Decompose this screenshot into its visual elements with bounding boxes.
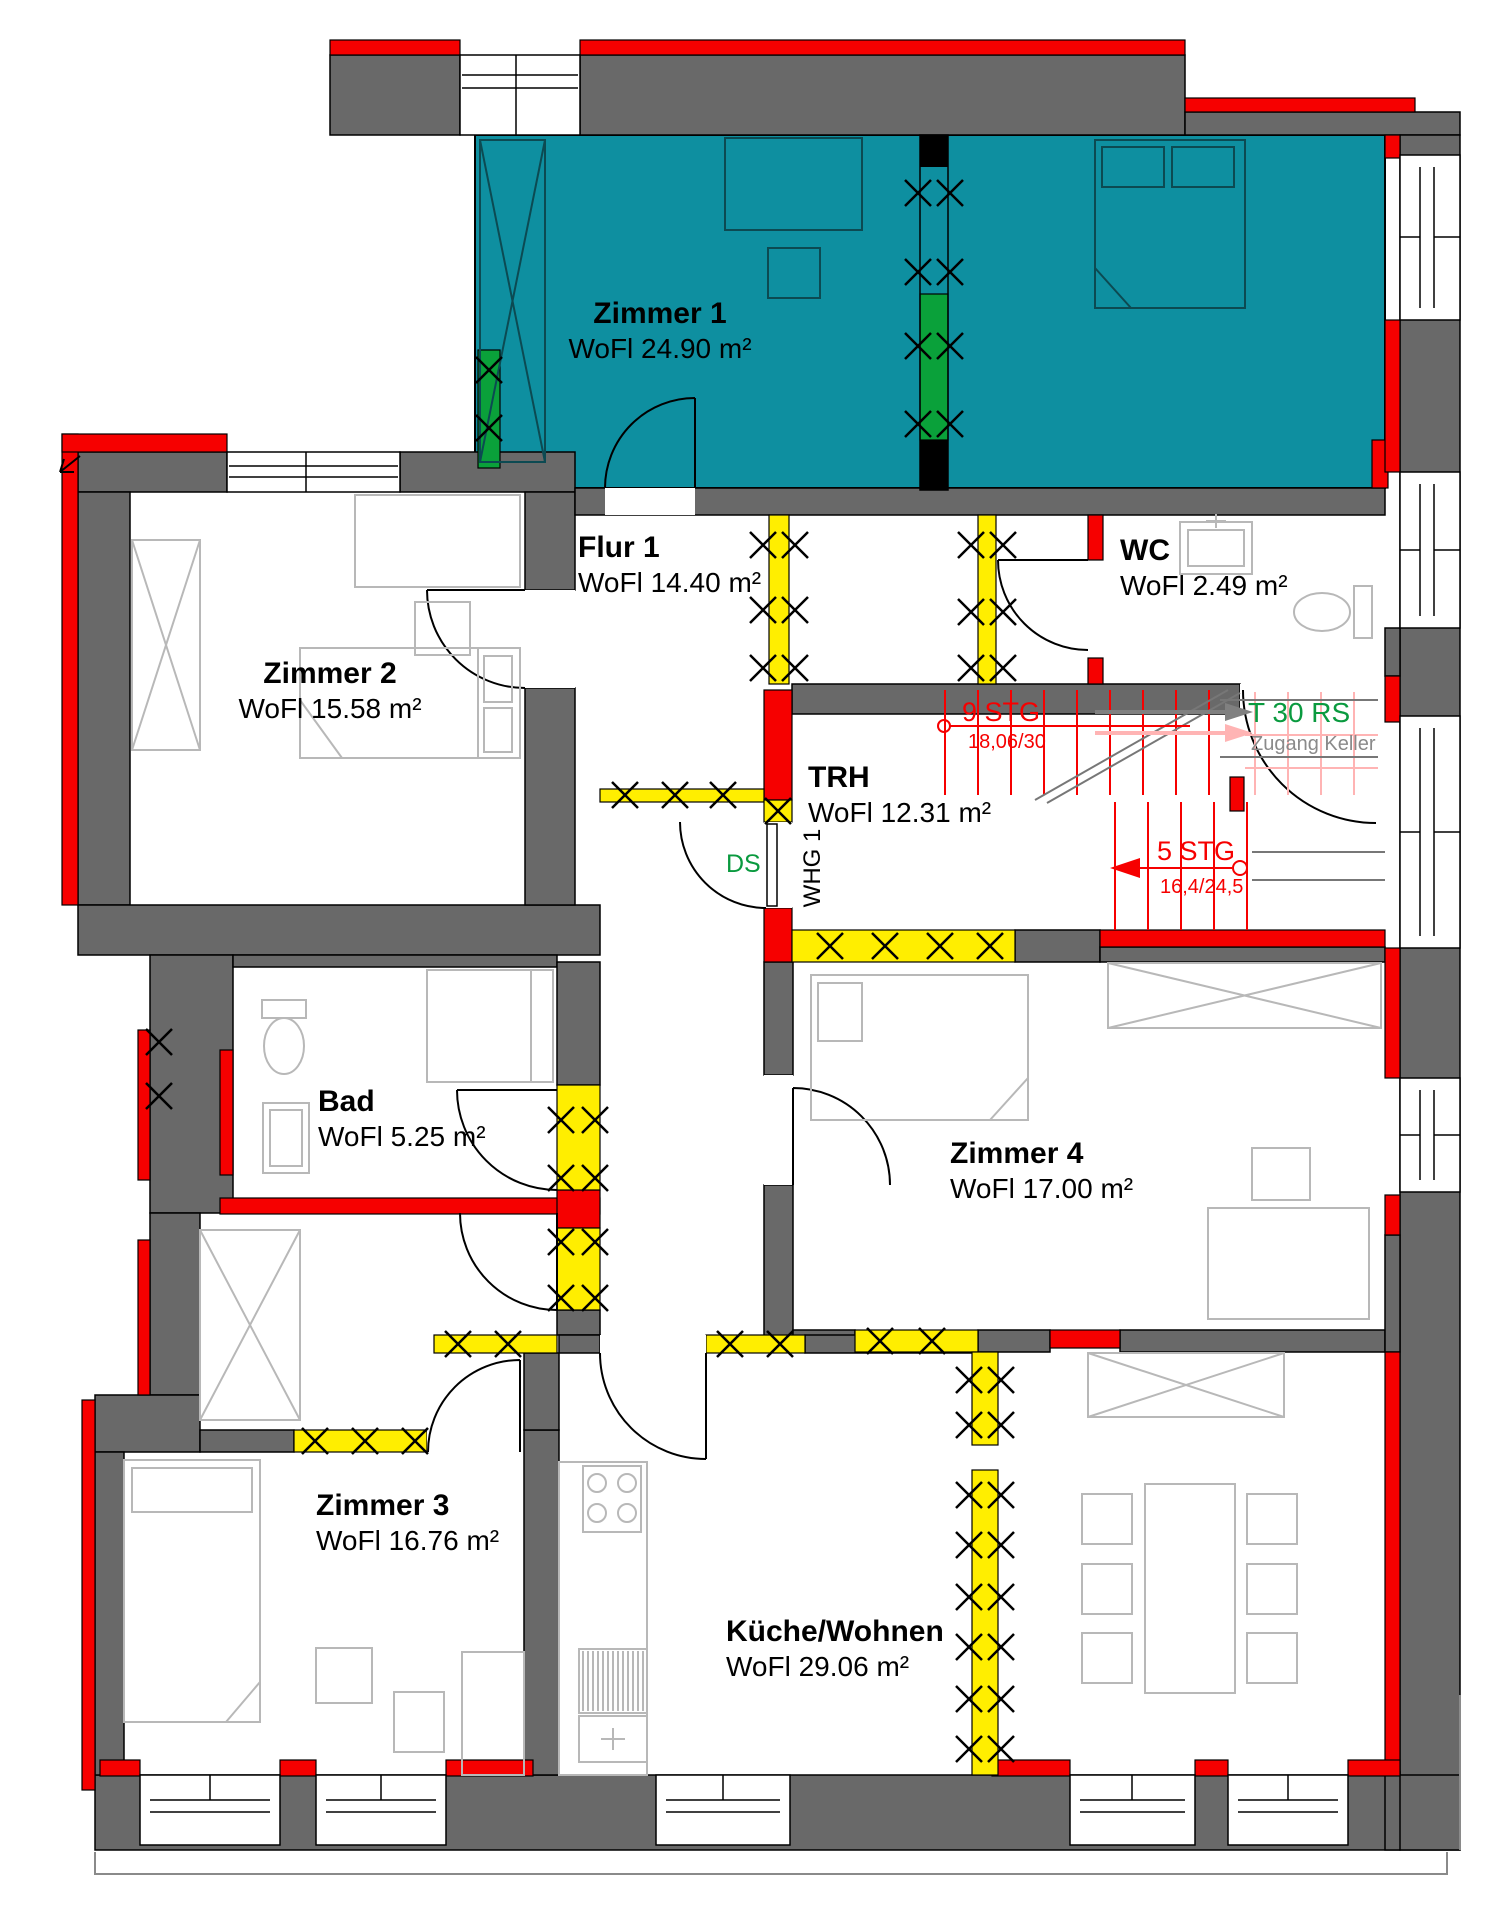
ds-mark: DS — [726, 850, 761, 879]
room-label-zimmer4: Zimmer 4 WoFl 17.00 m² — [950, 1136, 1133, 1206]
floor-plan: Zimmer 1 WoFl 24.90 m² Zimmer 2 WoFl 15.… — [0, 0, 1500, 1930]
appliance-hatch — [583, 1651, 643, 1711]
stair-down-dim: 16,4/24,5 — [1160, 876, 1243, 899]
whg1-mark: WHG 1 — [799, 829, 827, 908]
room-area: WoFl 16.76 m² — [316, 1524, 499, 1558]
room-label-zimmer3: Zimmer 3 WoFl 16.76 m² — [316, 1488, 499, 1558]
room-label-wc: WC WoFl 2.49 m² — [1120, 533, 1288, 603]
chair — [1252, 1148, 1310, 1200]
room-area: WoFl 5.25 m² — [318, 1120, 486, 1154]
toilet-tank — [262, 1000, 306, 1018]
room-area: WoFl 17.00 m² — [950, 1172, 1133, 1206]
room-label-zimmer2: Zimmer 2 WoFl 15.58 m² — [238, 656, 421, 726]
room-area: WoFl 2.49 m² — [1120, 569, 1288, 603]
bed — [124, 1460, 260, 1722]
desk — [355, 495, 520, 587]
room-label-trh: TRH WoFl 12.31 m² — [808, 760, 991, 830]
room-area: WoFl 29.06 m² — [726, 1650, 944, 1684]
kitchen-counter — [559, 1462, 647, 1775]
room-label-kueche: Küche/Wohnen WoFl 29.06 m² — [726, 1614, 944, 1684]
room-label-flur1: Flur 1 WoFl 14.40 m² — [578, 530, 761, 600]
side-table — [462, 1652, 524, 1775]
nightstand — [316, 1648, 372, 1703]
room-name: Bad — [318, 1084, 486, 1120]
bed — [811, 975, 1028, 1120]
room-area: WoFl 14.40 m² — [578, 566, 761, 600]
room-label-zimmer1: Zimmer 1 WoFl 24.90 m² — [568, 296, 751, 366]
cellar-access-label: Zugang Keller — [1251, 733, 1376, 756]
room-name: Zimmer 4 — [950, 1136, 1133, 1172]
chair — [394, 1692, 444, 1752]
room-name: WC — [1120, 533, 1288, 569]
room-area: WoFl 15.58 m² — [238, 692, 421, 726]
dining-table — [1145, 1484, 1235, 1693]
room-name: Zimmer 1 — [568, 296, 751, 332]
room-name: Küche/Wohnen — [726, 1614, 944, 1650]
desk — [1208, 1208, 1369, 1319]
chair — [1082, 1494, 1132, 1544]
toilet — [264, 1018, 304, 1074]
room-area: WoFl 24.90 m² — [568, 332, 751, 366]
shower — [427, 970, 553, 1082]
room-name: Zimmer 3 — [316, 1488, 499, 1524]
chair — [1247, 1494, 1297, 1544]
stair-down-label: 5 STG — [1157, 836, 1235, 867]
pillow — [484, 708, 512, 752]
room-name: TRH — [808, 760, 991, 796]
pillow — [132, 1468, 252, 1512]
chair — [1247, 1564, 1297, 1614]
chair — [1082, 1564, 1132, 1614]
room-name: Flur 1 — [578, 530, 761, 566]
pillow — [818, 983, 862, 1041]
room-name: Zimmer 2 — [238, 656, 421, 692]
room-label-bad: Bad WoFl 5.25 m² — [318, 1084, 486, 1154]
room-area: WoFl 12.31 m² — [808, 796, 991, 830]
stair-up-dim: 18,06/30 — [968, 731, 1046, 754]
toilet — [1294, 593, 1350, 631]
toilet-tank — [1354, 586, 1372, 638]
pillow — [484, 656, 512, 702]
fire-door-label: T 30 RS — [1248, 697, 1350, 729]
stair-up-label: 9 STG — [962, 697, 1040, 728]
chair — [1247, 1633, 1297, 1683]
chair — [1082, 1633, 1132, 1683]
